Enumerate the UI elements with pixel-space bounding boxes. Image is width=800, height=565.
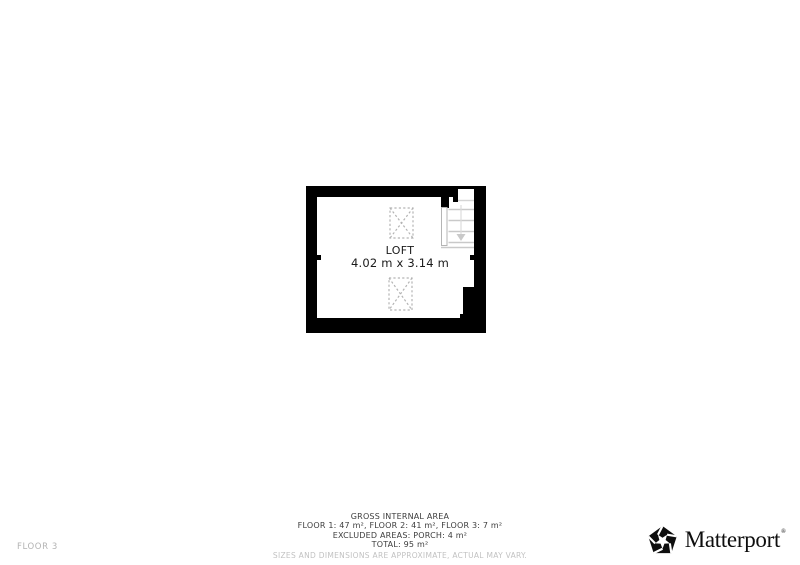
floor-indicator: FLOOR 3 (17, 542, 58, 552)
room-dimensions-label: 4.02 m x 3.14 m (351, 256, 449, 270)
floorplan-page: LOFT 4.02 m x 3.14 m GROSS INTERNAL AREA… (0, 0, 800, 565)
skylight-hatch-icon (390, 208, 413, 238)
skylight-hatch-icon (389, 278, 412, 310)
registered-trademark-symbol: ® (781, 528, 786, 535)
area-summary-title: GROSS INTERNAL AREA (0, 512, 800, 521)
matterport-logo-icon (647, 524, 678, 557)
floorplan-canvas: LOFT 4.02 m x 3.14 m (0, 0, 800, 565)
matterport-wordmark: Matterport® (685, 528, 786, 553)
matterport-logo: Matterport® (647, 521, 786, 559)
stairs-down-arrow-icon (457, 205, 466, 241)
stairs-icon (441, 201, 474, 248)
